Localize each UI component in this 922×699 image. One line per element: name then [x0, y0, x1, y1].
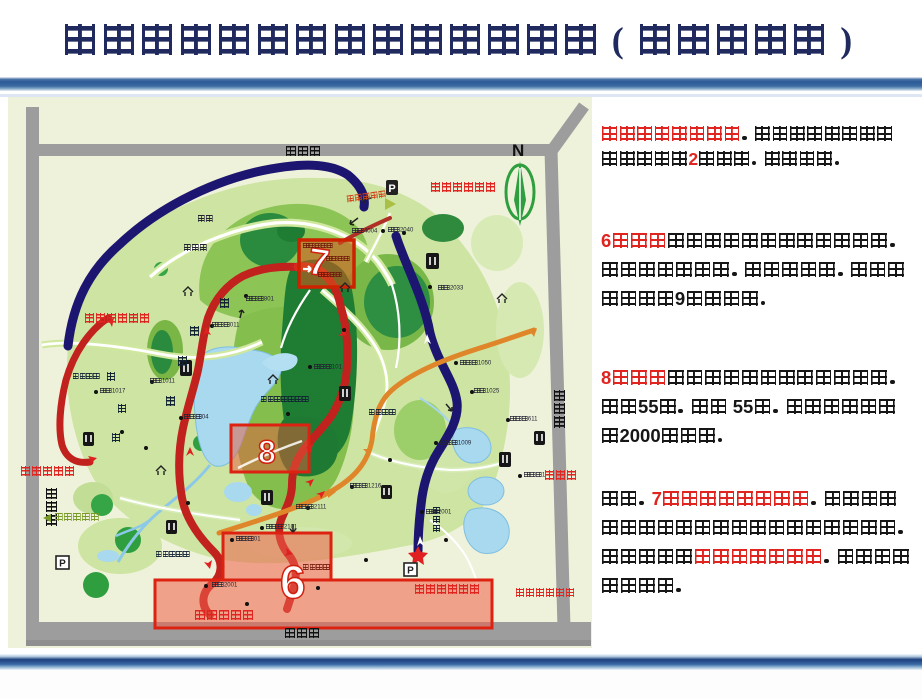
svg-text:P: P	[388, 183, 395, 195]
svg-text:P: P	[59, 559, 66, 570]
svg-text:P: P	[407, 566, 414, 577]
